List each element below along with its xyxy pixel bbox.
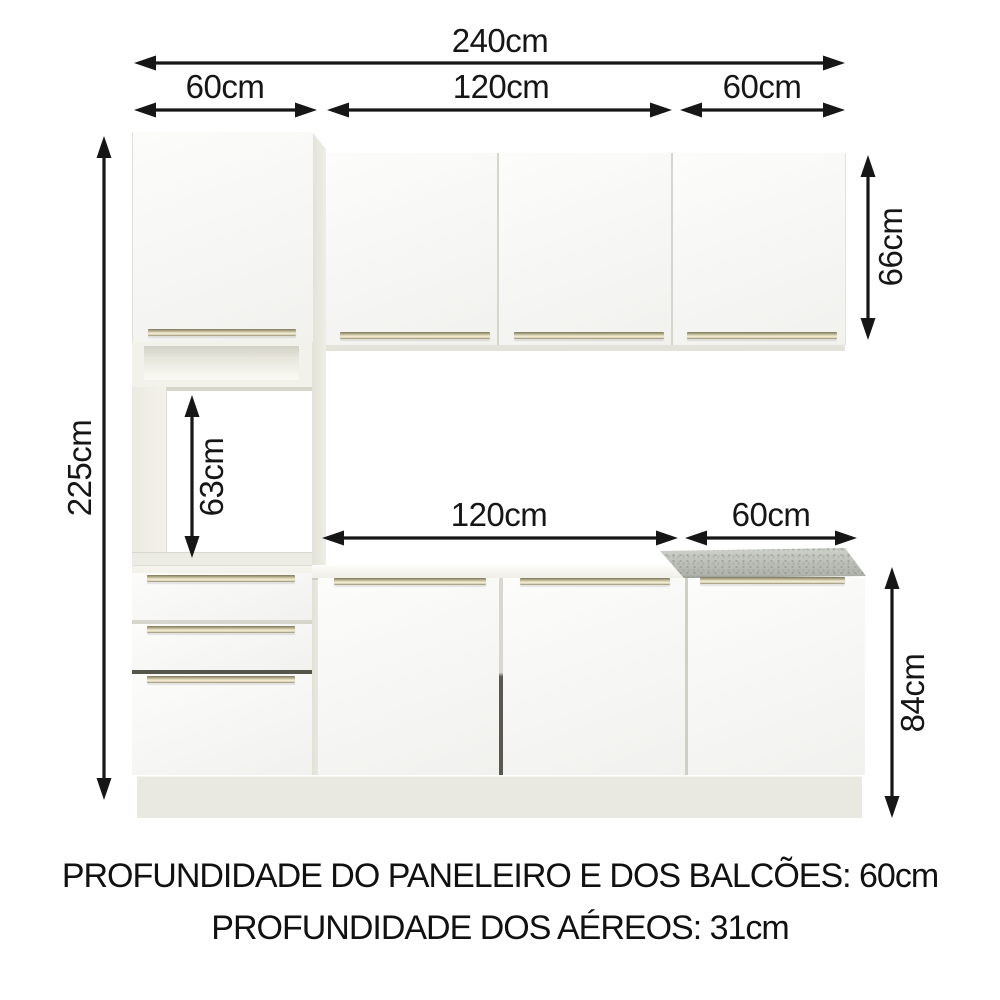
dim-label-total-height: 225cm	[61, 420, 99, 517]
dim-label-base-middle-width: 120cm	[451, 496, 548, 534]
dim-label-base-right-width: 60cm	[732, 496, 811, 534]
footer-note-depth-upper: PROFUNDIDADE DOS AÉREOS: 31cm	[0, 909, 1000, 948]
dim-label-upper-right-width: 60cm	[723, 68, 802, 106]
footer-note-depth-tower-base: PROFUNDIDADE DO PANELEIRO E DOS BALCÕES:…	[0, 857, 1000, 896]
kitchen-dimension-diagram: 240cm 60cm 120cm 60cm 225cm 63cm 66cm 12…	[0, 0, 1000, 1000]
dim-label-tower-width: 60cm	[186, 68, 265, 106]
dim-label-aereo-height: 66cm	[872, 208, 910, 287]
dim-label-total-width: 240cm	[452, 22, 549, 60]
dim-label-upper-middle-width: 120cm	[453, 68, 550, 106]
dim-label-base-height: 84cm	[894, 654, 932, 733]
dim-label-oven-space-height: 63cm	[193, 438, 231, 517]
